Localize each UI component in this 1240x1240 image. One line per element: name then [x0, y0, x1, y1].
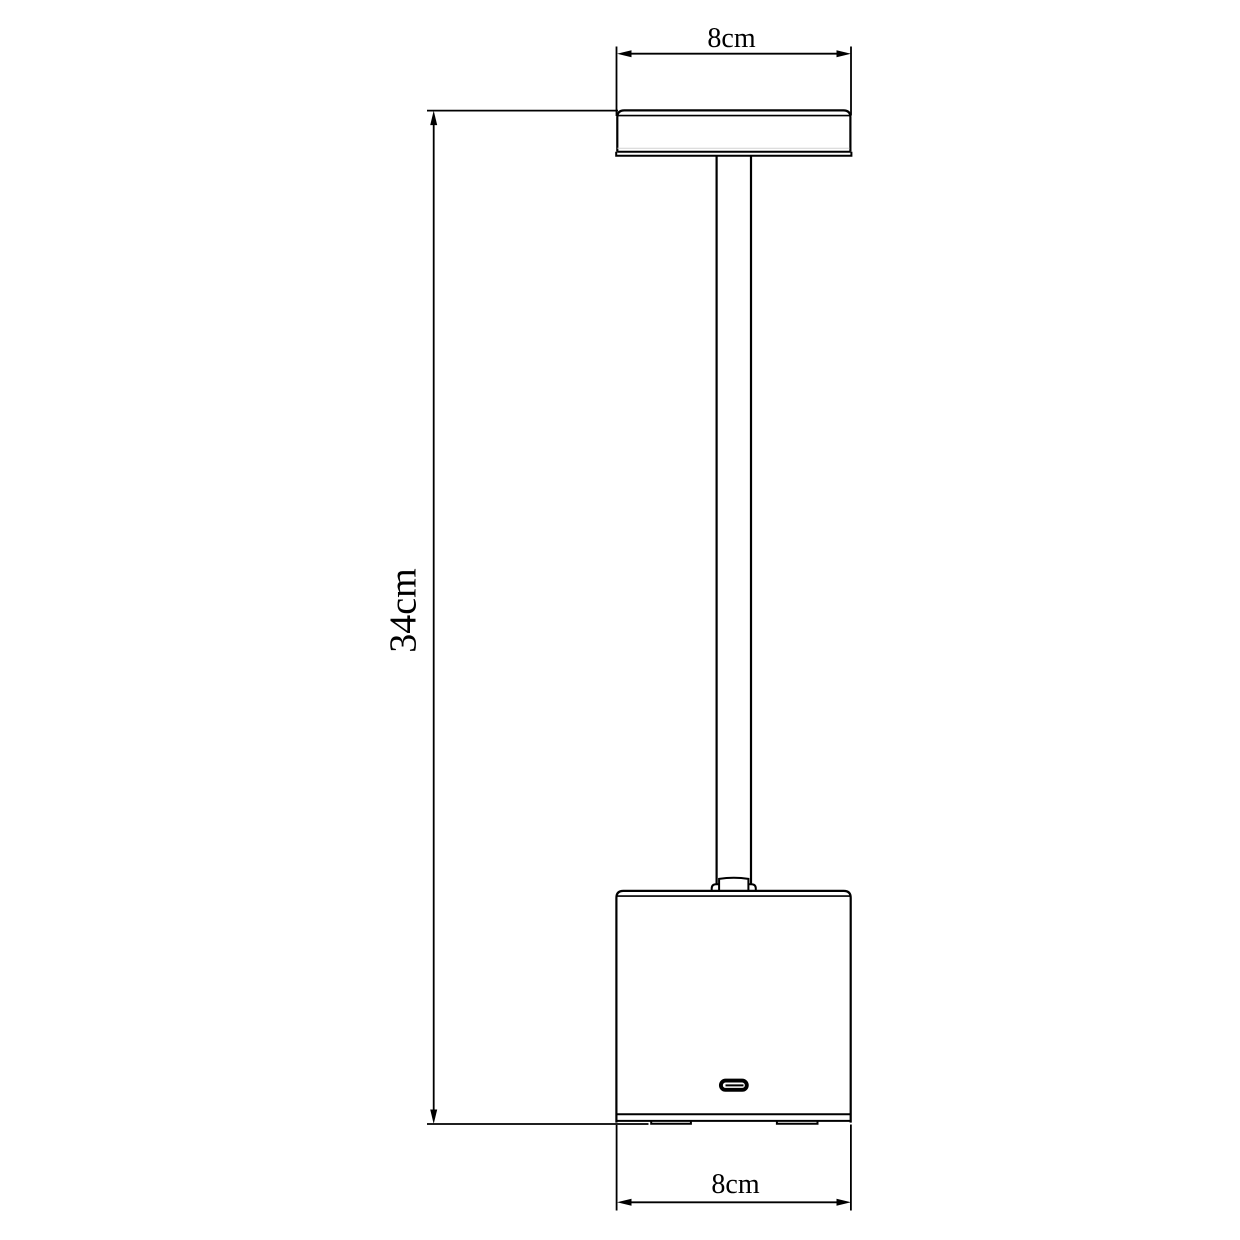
- svg-text:8cm: 8cm: [711, 1169, 759, 1200]
- svg-text:34cm: 34cm: [383, 568, 425, 652]
- svg-text:8cm: 8cm: [707, 23, 755, 54]
